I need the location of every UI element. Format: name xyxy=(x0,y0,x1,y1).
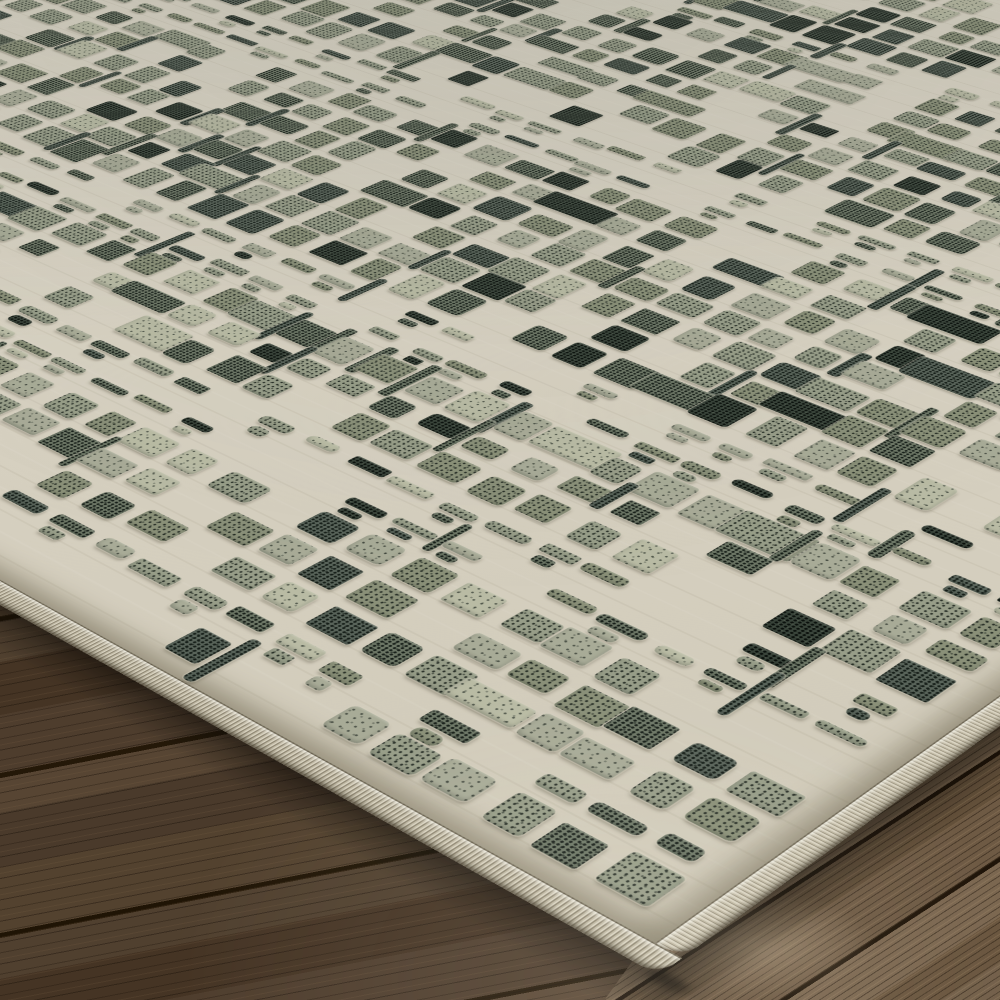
rug-product-photo xyxy=(0,0,1000,1000)
